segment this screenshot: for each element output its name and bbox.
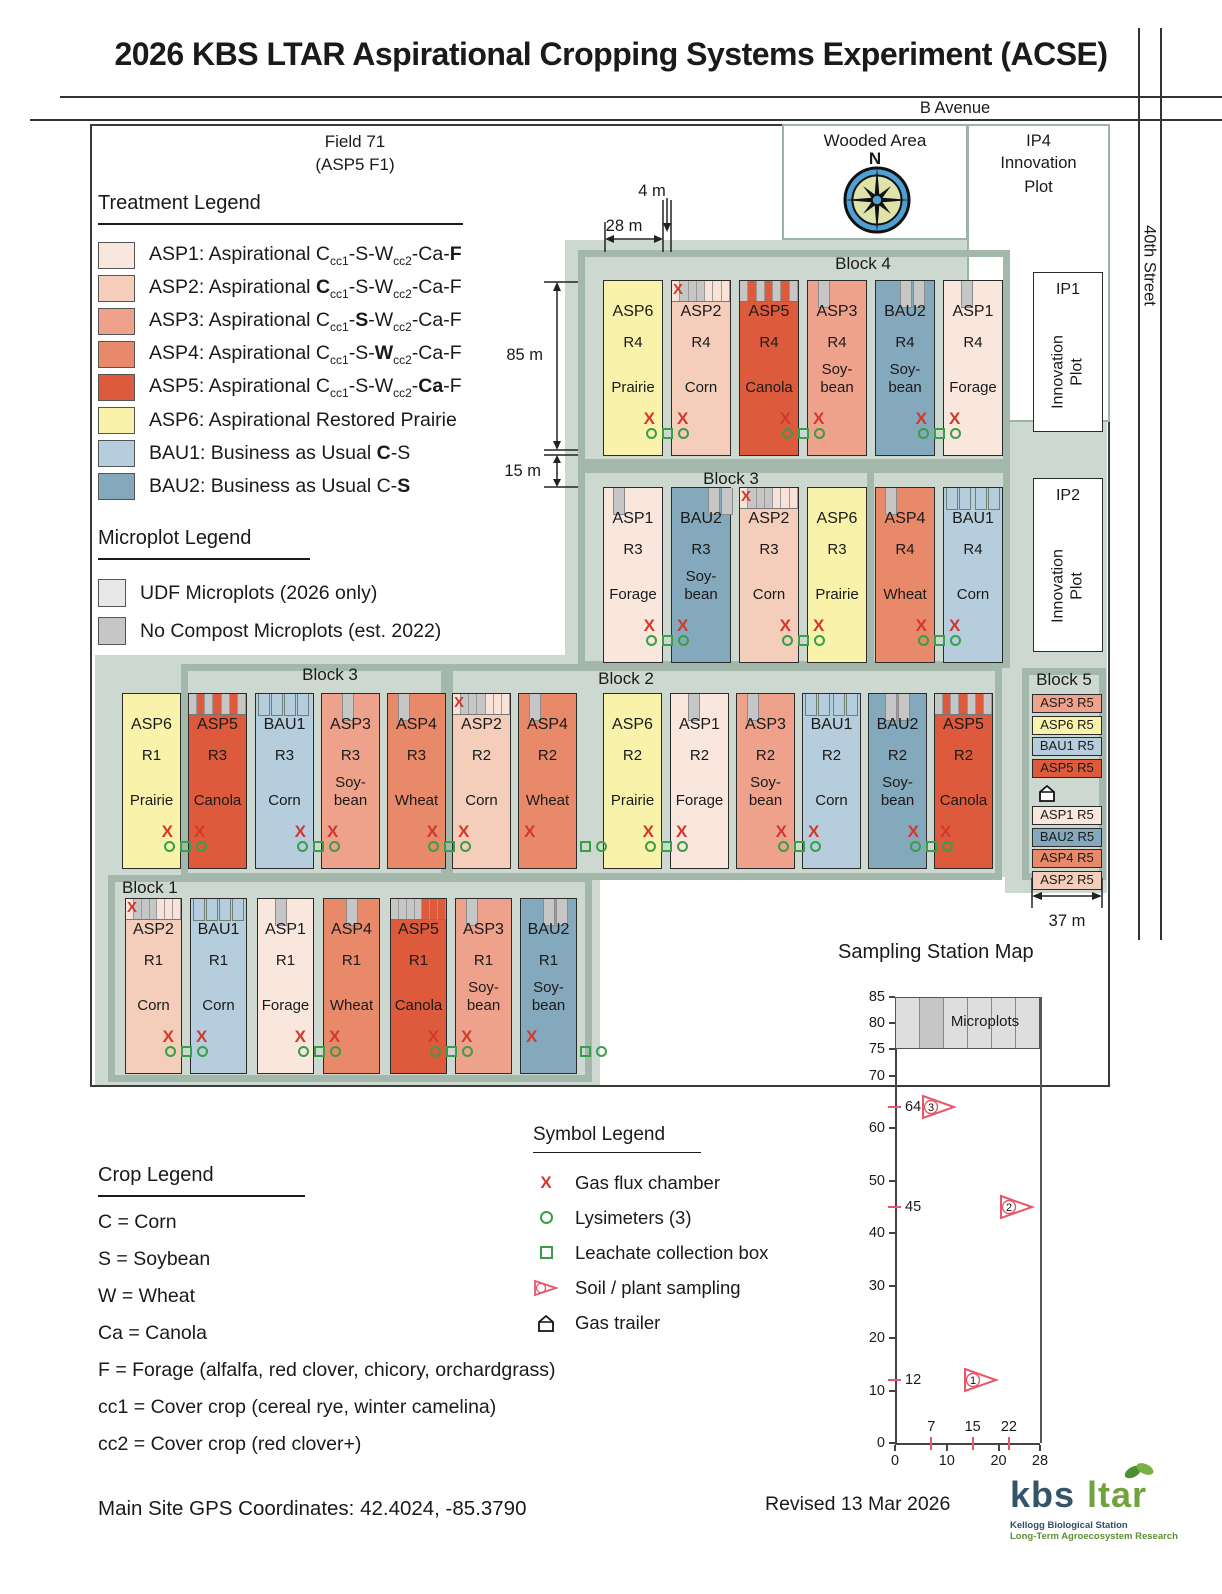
treatment-label: ASP2: Aspirational Ccc1-S-Wcc2-Ca-F: [149, 276, 462, 301]
plot-treatment-label: ASP5: [935, 716, 992, 734]
svg-text:1: 1: [970, 1375, 976, 1387]
svg-text:3: 3: [928, 1102, 934, 1114]
gas-flux-x-icon: X: [194, 822, 205, 842]
lysimeter-cluster: [297, 841, 340, 852]
chart-station-y-tick: [888, 1379, 901, 1381]
chart-x-tick: [1039, 1445, 1041, 1451]
sampling-station-1: 1: [963, 1367, 999, 1393]
chart-y-tick-label: 60: [853, 1120, 885, 1136]
chart-y-tick-label: 30: [853, 1278, 885, 1294]
microplot-cell: [773, 281, 781, 301]
plot-rep-label: R1: [391, 952, 446, 969]
chart-x-tick: [946, 1445, 948, 1451]
lysimeter-cluster: [645, 841, 688, 852]
microplot-cell: [422, 899, 430, 919]
plot-crop-label: Soy- bean: [869, 774, 926, 810]
chart-y-tick: [889, 1022, 895, 1024]
microplot-cell: [399, 899, 407, 919]
sampling-flag-icon: 2: [999, 1194, 1035, 1220]
ip4-id: IP4: [969, 132, 1108, 151]
microplot-cell: [438, 899, 446, 919]
lysimeter-icon: [918, 635, 929, 646]
chart-y-tick: [889, 1285, 895, 1287]
plot-treatment-label: ASP6: [808, 510, 866, 528]
plot-crop-label: Corn: [740, 586, 798, 604]
gas-flux-x-icon: X: [644, 409, 655, 429]
leachate-box-icon: [794, 841, 805, 852]
microplot-cell: [705, 281, 713, 301]
microplot-cell: [205, 694, 213, 714]
microplot-swatch: [98, 579, 126, 607]
plot-treatment-label: ASP3: [322, 716, 379, 734]
block5-strip-asp3-r5: ASP3 R5: [1032, 694, 1102, 713]
udf-microplot-cell: [206, 899, 218, 921]
treatment-legend-items: ASP1: Aspirational Ccc1-S-Wcc2-Ca-FASP2:…: [98, 239, 558, 503]
plot-rep-label: R2: [604, 747, 661, 764]
treatment-legend: Treatment Legend ASP1: Aspirational Ccc1…: [98, 192, 558, 503]
treatment-swatch-asp6: [98, 407, 135, 434]
leachate-box-icon: [580, 1046, 591, 1057]
gas-flux-x-icon: X: [428, 1027, 439, 1047]
plot-crop-label: Canola: [740, 379, 798, 397]
lysimeter-icon: [298, 1046, 309, 1057]
plot-rep-label: R2: [935, 747, 992, 764]
microplot-cell: [773, 488, 781, 508]
block4-label: Block 4: [813, 254, 913, 274]
udf-microplot-cell: [959, 488, 971, 510]
chart-y-tick-label: 20: [853, 1330, 885, 1346]
lysimeter-cluster: [428, 841, 471, 852]
block5-strip-asp1-r5: ASP1 R5: [1032, 806, 1102, 825]
udf-microplot-cell: [284, 694, 296, 716]
block5-strip-asp2-r5: ASP2 R5: [1032, 871, 1102, 890]
gas-flux-x-icon: X: [540, 1173, 551, 1193]
symbol-legend-item: Gas trailer: [533, 1305, 833, 1340]
chart-x-tick-label: 28: [1024, 1453, 1056, 1469]
plot-treatment-label: BAU1: [256, 716, 313, 734]
wooded-area-box: Wooded Area N: [782, 124, 968, 240]
dim-28m-label: 28 m: [596, 217, 652, 236]
lysimeter-icon: [782, 428, 793, 439]
udf-microplot-cell: [946, 488, 958, 510]
chart-x-tick-label: 0: [879, 1453, 911, 1469]
logo-subtext-2: Long-Term Agroecosystem Research: [1010, 1531, 1210, 1542]
lysimeter-icon: [814, 635, 825, 646]
sampling-map-title: Sampling Station Map: [838, 941, 1068, 964]
microplot-strip: X: [126, 899, 181, 920]
lysimeter-icon: [810, 841, 821, 852]
symbol-legend: Symbol Legend XGas flux chamberLysimeter…: [533, 1124, 833, 1340]
chart-y-tick-label: 80: [853, 1015, 885, 1031]
block5-strip-asp4-r5: ASP4 R5: [1032, 849, 1102, 868]
microplot-cell: [781, 281, 789, 301]
gas-flux-x-icon: X: [780, 616, 791, 636]
microplot-cell: [722, 281, 730, 301]
microplot-cell: [391, 899, 399, 919]
plot-treatment-label: ASP3: [456, 921, 511, 939]
microplot-cell: [407, 899, 415, 919]
chart-y-tick: [889, 1075, 895, 1077]
block2-label: Block 2: [576, 669, 676, 689]
microplot-cell: [959, 694, 967, 714]
plot-crop-label: Canola: [935, 792, 992, 810]
leachate-box-icon: [661, 841, 672, 852]
symbol-legend-item: XGas flux chamber: [533, 1165, 833, 1200]
treatment-swatch-asp2: [98, 275, 135, 302]
chart-y-tick: [889, 996, 895, 998]
plot-rep-label: R1: [126, 952, 181, 969]
lysimeter-icon: [678, 428, 689, 439]
plot-crop-label: Prairie: [808, 586, 866, 604]
lysimeter-icon: [950, 428, 961, 439]
plot-treatment-label: ASP1: [604, 510, 662, 528]
plot-rep-label: R1: [456, 952, 511, 969]
plot-rep-label: R2: [519, 747, 576, 764]
plot-rep-label: R1: [324, 952, 379, 969]
plot-rep-label: R4: [808, 334, 866, 351]
treatment-label: BAU1: Business as Usual C-S: [149, 442, 410, 465]
plot-treatment-label: BAU2: [876, 303, 934, 321]
gas-trailer: [1036, 782, 1058, 804]
chart-y-tick: [889, 1127, 895, 1129]
gas-flux-x-icon: X: [741, 488, 751, 505]
wooded-area-label: Wooded Area: [784, 131, 966, 151]
sampling-station-2: 2: [999, 1194, 1035, 1220]
gas-flux-x-icon: X: [163, 1027, 174, 1047]
leachate-box-icon: [446, 1046, 457, 1057]
plot-treatment-label: ASP2: [126, 921, 181, 939]
lysimeter-icon: [645, 841, 656, 852]
microplot-legend-items: UDF Microplots (2026 only)No Compost Mic…: [98, 574, 558, 650]
field-label-line1: Field 71: [240, 130, 470, 153]
gas-flux-x-icon: X: [916, 409, 927, 429]
leachate-box-icon: [180, 841, 191, 852]
leachate-box-icon: [580, 841, 591, 852]
plot-treatment-label: ASP4: [324, 921, 379, 939]
lysimeter-icon: [942, 841, 953, 852]
ip2-id: IP2: [1034, 487, 1102, 505]
symbol-icon-wrap: [533, 1211, 559, 1224]
chart-microplots-label: Microplots: [933, 1013, 1037, 1030]
lysimeter-icon: [428, 841, 439, 852]
lysimeter-icon: [646, 428, 657, 439]
lysimeter-cluster: [646, 428, 689, 439]
gas-flux-x-icon: X: [916, 616, 927, 636]
microplot-cell: [943, 694, 951, 714]
chart-y-tick: [889, 1390, 895, 1392]
ip4-label: Innovation Plot: [993, 151, 1084, 199]
plot-crop-label: Wheat: [519, 792, 576, 810]
plot-rep-label: R3: [189, 747, 246, 764]
symbol-legend-item: Soil / plant sampling: [533, 1270, 833, 1305]
block1-label: Block 1: [122, 878, 222, 898]
plot-rep-label: R2: [453, 747, 510, 764]
treatment-label: ASP5: Aspirational Ccc1-S-Wcc2-Ca-F: [149, 375, 462, 400]
gas-flux-x-icon: X: [643, 822, 654, 842]
gas-flux-x-icon: X: [677, 616, 688, 636]
microplot-cell: [976, 694, 984, 714]
lysimeter-icon: [950, 635, 961, 646]
gas-flux-x-icon: X: [677, 409, 688, 429]
plot-crop-label: Soy- bean: [322, 774, 379, 810]
chart-y-tick: [889, 1048, 895, 1050]
street-label: 40th Street: [1140, 211, 1159, 321]
lysimeter-cluster: [778, 841, 821, 852]
gas-flux-x-icon: X: [162, 822, 173, 842]
plot-rep-label: R2: [737, 747, 794, 764]
microplot-cell: [230, 694, 238, 714]
crop-legend-line: cc2 = Cover crop (red clover+): [98, 1433, 658, 1470]
gps-coordinates: Main Site GPS Coordinates: 42.4024, -85.…: [98, 1497, 527, 1521]
chart-station-y-label: 12: [905, 1372, 935, 1388]
microplot-cell: [689, 281, 697, 301]
lysimeter-icon: [197, 1046, 208, 1057]
lysimeter-icon: [430, 1046, 441, 1057]
plot-crop-label: Wheat: [388, 792, 445, 810]
gas-flux-x-icon: X: [526, 1027, 537, 1047]
lysimeter-cluster: [918, 635, 961, 646]
page-title: 2026 KBS LTAR Aspirational Cropping Syst…: [0, 36, 1222, 73]
lysimeter-icon: [330, 1046, 341, 1057]
crop-legend-title: Crop Legend: [98, 1164, 305, 1197]
chart-station-x-label: 22: [995, 1419, 1023, 1435]
plot-crop-label: Soy- bean: [456, 979, 511, 1015]
symbol-icon-wrap: [533, 1279, 559, 1297]
chart-y-tick: [889, 1180, 895, 1182]
microplot-cell: [968, 694, 976, 714]
block5-strip-bau1-r5: BAU1 R5: [1032, 737, 1102, 756]
chart-y-tick-label: 85: [853, 989, 885, 1005]
treatment-swatch-bau1: [98, 440, 135, 467]
leachate-box-icon: [444, 841, 455, 852]
plot-crop-label: Forage: [944, 379, 1002, 397]
gas-flux-x-icon: X: [949, 616, 960, 636]
svg-text:2: 2: [1006, 1202, 1012, 1214]
symbol-icon-wrap: X: [533, 1173, 559, 1193]
chart-station-y-label: 45: [905, 1199, 935, 1215]
microplot-cell: [781, 488, 789, 508]
lysimeter-icon: [782, 635, 793, 646]
plot-treatment-label: BAU2: [869, 716, 926, 734]
symbol-legend-item: Lysimeters (3): [533, 1200, 833, 1235]
lysimeter-cluster-partial: [580, 841, 607, 852]
lysimeter-cluster-partial: [580, 1046, 607, 1057]
microplot-strip: [189, 694, 246, 715]
treatment-legend-item: ASP2: Aspirational Ccc1-S-Wcc2-Ca-F: [98, 272, 558, 305]
microplot-cell: [173, 899, 181, 919]
microplot-cell: [415, 899, 423, 919]
leachate-box-icon: [662, 635, 673, 646]
plot-rep-label: R2: [671, 747, 728, 764]
gas-flux-x-icon: X: [676, 822, 687, 842]
treatment-legend-title: Treatment Legend: [98, 192, 463, 225]
plot-rep-label: R2: [803, 747, 860, 764]
microplot-cell: [765, 488, 773, 508]
treatment-legend-item: ASP1: Aspirational Ccc1-S-Wcc2-Ca-F: [98, 239, 558, 272]
crop-legend-line: F = Forage (alfalfa, red clover, chicory…: [98, 1359, 658, 1396]
plot-rep-label: R1: [521, 952, 576, 969]
microplot-cell: [157, 899, 165, 919]
gas-flux-x-icon: X: [780, 409, 791, 429]
plot-treatment-label: BAU1: [803, 716, 860, 734]
lysimeter-icon: [460, 841, 471, 852]
gas-flux-x-icon: X: [644, 616, 655, 636]
chart-x-tick: [998, 1445, 1000, 1451]
leachate-box-icon: [314, 1046, 325, 1057]
treatment-swatch-asp5: [98, 374, 135, 401]
microplot-cell: [165, 899, 173, 919]
microplot-cell: [213, 694, 221, 714]
microplot-cell: [477, 694, 485, 714]
lysimeter-icon: [164, 841, 175, 852]
udf-microplot-cell: [805, 694, 817, 716]
gas-flux-x-icon: X: [327, 822, 338, 842]
plot-rep-label: R4: [740, 334, 798, 351]
microplot-legend-item: No Compost Microplots (est. 2022): [98, 612, 558, 650]
gas-flux-x-icon: X: [813, 409, 824, 429]
udf-microplot-cell: [232, 899, 244, 921]
plot-crop-label: Prairie: [604, 379, 662, 397]
plot-rep-label: R4: [604, 334, 662, 351]
symbol-icon-wrap: [533, 1312, 559, 1334]
leachate-box-icon: [934, 635, 945, 646]
plot-treatment-label: BAU2: [672, 510, 730, 528]
microplot-legend-title: Microplot Legend: [98, 527, 310, 560]
chart-y-tick-label: 70: [853, 1068, 885, 1084]
symbol-label: Lysimeters (3): [575, 1207, 692, 1229]
lysimeter-cluster: [782, 635, 825, 646]
logo-ltar-text: ltar: [1087, 1474, 1147, 1516]
gas-flux-x-icon: X: [673, 281, 683, 298]
plot-rep-label: R4: [876, 541, 934, 558]
lysimeter-icon: [814, 428, 825, 439]
udf-microplot-cell: [988, 488, 1000, 510]
microplot-cell: [486, 694, 494, 714]
plot-crop-label: Prairie: [123, 792, 180, 810]
plot-rep-label: R3: [740, 541, 798, 558]
sampling-station-3: 3: [921, 1094, 957, 1120]
gas-trailer-icon: [1036, 782, 1058, 804]
symbol-label: Gas trailer: [575, 1312, 660, 1334]
treatment-legend-item: ASP4: Aspirational Ccc1-S-Wcc2-Ca-F: [98, 338, 558, 371]
udf-microplot-cell: [846, 694, 858, 716]
microplot-cell: [748, 281, 756, 301]
plot-treatment-label: ASP1: [671, 716, 728, 734]
plot-treatment-label: ASP5: [391, 921, 446, 939]
lysimeter-cluster: [430, 1046, 473, 1057]
chart-y-tick: [889, 1337, 895, 1339]
logo-kbs-text: kbs: [1010, 1474, 1075, 1516]
b-avenue-road-line-top: [60, 96, 1222, 98]
microplot-strip: X: [453, 694, 510, 715]
plot-treatment-label: BAU2: [521, 921, 576, 939]
udf-microplot-cell: [297, 694, 309, 716]
plot-crop-label: Corn: [944, 586, 1002, 604]
lysimeter-icon: [596, 841, 607, 852]
treatment-legend-item: ASP3: Aspirational Ccc1-S-Wcc2-Ca-F: [98, 305, 558, 338]
chart-station-y-tick: [888, 1206, 901, 1208]
chart-x-tick-label: 20: [983, 1453, 1015, 1469]
lysimeter-cluster: [164, 841, 207, 852]
microplot-cell: [790, 281, 798, 301]
treatment-swatch-asp1: [98, 242, 135, 269]
block4-block3-divider: [867, 466, 874, 668]
microplot-cell: [757, 281, 765, 301]
lysimeter-icon: [297, 841, 308, 852]
lysimeter-cluster: [298, 1046, 341, 1057]
chart-y-tick: [889, 1232, 895, 1234]
plot-treatment-label: ASP3: [737, 716, 794, 734]
gas-flux-x-icon: X: [461, 1027, 472, 1047]
ip1-innovation-plot-box: IP1 Innovation Plot: [1033, 272, 1103, 432]
symbol-legend-item: Leachate collection box: [533, 1235, 833, 1270]
microplot-cell: [713, 281, 721, 301]
ip1-label: Innovation Plot: [1049, 325, 1087, 420]
microplot-swatch: [98, 617, 126, 645]
b-avenue-label: B Avenue: [880, 99, 1030, 118]
street-road-line-left: [1138, 28, 1140, 940]
symbol-label: Soil / plant sampling: [575, 1277, 741, 1299]
gas-flux-x-icon: X: [940, 822, 951, 842]
plot-crop-label: Corn: [672, 379, 730, 397]
gas-flux-x-icon: X: [808, 822, 819, 842]
plot-crop-label: Corn: [126, 997, 181, 1015]
plot-rep-label: R3: [322, 747, 379, 764]
microplot-strip: X: [740, 488, 798, 509]
block5-strip-asp5-r5: ASP5 R5: [1032, 759, 1102, 778]
chart-station-y-tick: [888, 1106, 901, 1108]
sampling-flag-icon: 3: [921, 1094, 957, 1120]
b-avenue-road-line-bottom: [30, 119, 1222, 121]
plot-crop-label: Wheat: [876, 586, 934, 604]
microplot-cell: [469, 694, 477, 714]
gas-flux-x-icon: X: [295, 1027, 306, 1047]
microplot-cell: [757, 488, 765, 508]
plot-treatment-label: ASP2: [453, 716, 510, 734]
revised-date: Revised 13 Mar 2026: [765, 1493, 950, 1516]
udf-microplot-cell: [975, 488, 987, 510]
sampling-flag-icon: [533, 1279, 559, 1297]
microplot-cell: [142, 899, 150, 919]
leachate-box-icon: [798, 428, 809, 439]
microplot-strip: [740, 281, 798, 302]
plot-treatment-label: ASP6: [604, 303, 662, 321]
gas-flux-x-icon: X: [524, 822, 535, 842]
plot-treatment-label: ASP4: [519, 716, 576, 734]
microplot-cell: [222, 694, 230, 714]
microplot-cell: [197, 694, 205, 714]
chart-y-tick-label: 50: [853, 1173, 885, 1189]
treatment-legend-item: BAU1: Business as Usual C-S: [98, 437, 558, 470]
gas-flux-x-icon: X: [295, 822, 306, 842]
treatment-legend-item: ASP6: Aspirational Restored Prairie: [98, 404, 558, 437]
lysimeter-icon: [677, 841, 688, 852]
lysimeter-icon: [596, 1046, 607, 1057]
plot-rep-label: R1: [123, 747, 180, 764]
plot-crop-label: Corn: [803, 792, 860, 810]
chart-x-tick: [894, 1445, 896, 1451]
plot-rep-label: R1: [258, 952, 313, 969]
microplot-cell: [430, 899, 438, 919]
lysimeter-cluster: [918, 428, 961, 439]
symbol-label: Gas flux chamber: [575, 1172, 720, 1194]
udf-microplot-cell: [258, 694, 270, 716]
plot-crop-label: Corn: [453, 792, 510, 810]
lysimeter-icon: [918, 428, 929, 439]
microplot-cell: [150, 899, 158, 919]
microplot-strip: X: [672, 281, 730, 302]
chart-y-tick-label: 0: [853, 1435, 885, 1451]
